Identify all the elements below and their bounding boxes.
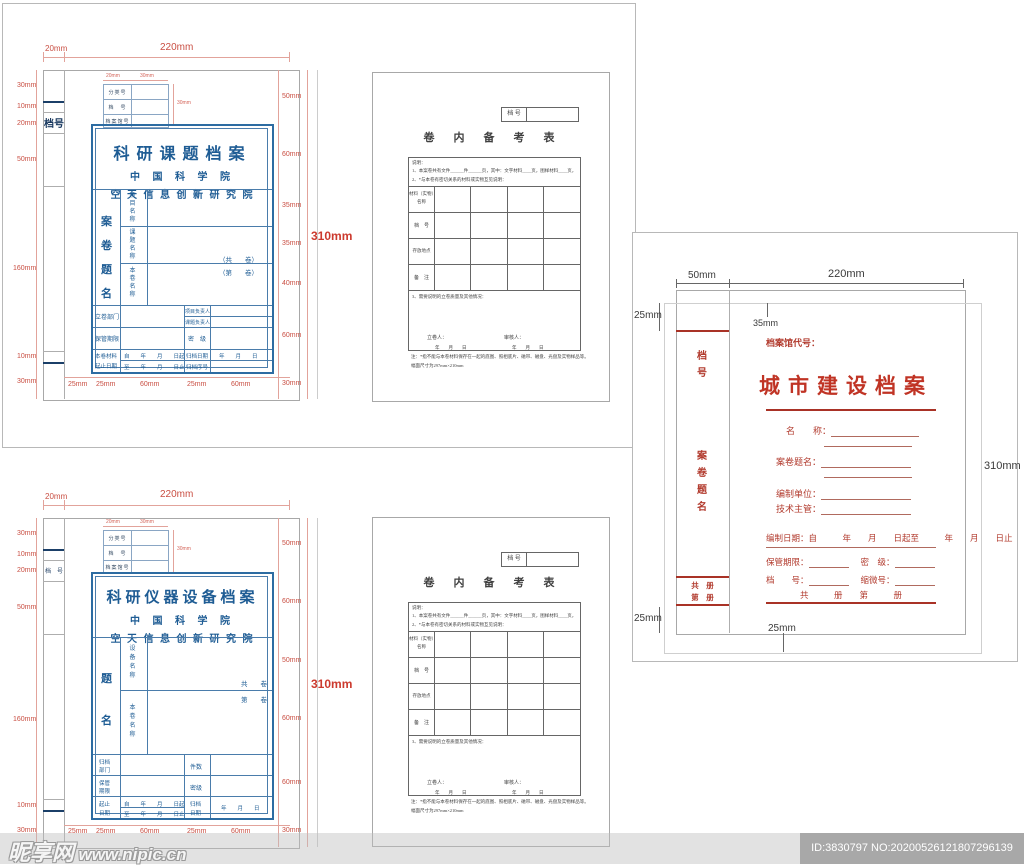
row-label: 材料（实物） [409, 636, 434, 642]
beikao-note: 说明： [412, 160, 426, 166]
grid-line [120, 690, 272, 691]
field-blank [831, 427, 919, 437]
beikao-note: 2、*与本卷有密切关系的材料或实物互见说明： [412, 177, 507, 183]
dim-label: 50mm [688, 271, 716, 281]
dim-line [43, 57, 290, 58]
dim-label: 60mm [282, 332, 301, 339]
folder2-org1: 中 国 科 学 院 [93, 612, 272, 627]
field-blank [821, 505, 911, 515]
cell-label: 密级 [190, 783, 202, 792]
dim-tick [963, 279, 964, 288]
mini-row-label: 档 号 [104, 546, 132, 560]
row-label: 备 注 [409, 274, 434, 281]
beikao-footnote: 注：*指不能与本卷材料保存在一起的底图、照相底片、磁带、磁盘、光盘及实物样品等。 [411, 799, 589, 805]
vol-total: 共 卷 [241, 678, 267, 688]
dim-tick [289, 500, 290, 510]
mini-row-label: 分类号 [104, 531, 132, 545]
dim-tick [289, 52, 290, 62]
folder2-cover-title: 科研仪器设备档案 [93, 586, 272, 607]
dim-label: 10mm [17, 802, 36, 809]
danghao-value [527, 553, 578, 566]
dim-label: 25mm [768, 624, 796, 634]
dim-label: 60mm [282, 779, 301, 786]
folder1-cover-title: 科研课题档案 [93, 140, 272, 164]
field-volume-count: 共 册 第 册 [766, 589, 936, 601]
spine-rule [43, 362, 64, 364]
folder1-spine-label: 档号 [44, 115, 64, 130]
date-label: 年 月 日 [512, 345, 544, 351]
form-line [543, 186, 544, 290]
folder1-side-col-label: 案卷题名 [100, 210, 113, 306]
dim-label: 25mm [634, 311, 662, 321]
spine-rule [43, 549, 64, 551]
dim-line [307, 70, 308, 399]
mini-row-label: 档 号 [104, 100, 132, 114]
spine-rule [43, 560, 64, 561]
field-date-range: 编制日期：自 年 月 日起至 年 月 日止 [766, 532, 936, 548]
mini-row-value [132, 546, 168, 560]
cell-label: 本卷材料 [95, 352, 117, 360]
spine-rule [676, 330, 729, 332]
field-unit: 编制单位： [776, 487, 911, 500]
danghao-label: 档 号 [502, 553, 527, 566]
folder2-side-col-label: 题名 [100, 658, 113, 742]
row-label: 本卷名称 [129, 267, 136, 299]
rightp-title-underline [766, 409, 936, 411]
rightp-spine-vol1: 共 册 [678, 580, 727, 591]
spine-rule [43, 581, 64, 582]
beikao-note: 1、本案卷共有文件______件______页，其中：文字材料____页，图样材… [412, 613, 576, 619]
dim-label: 10mm [17, 103, 36, 110]
dim-label: 160mm [13, 265, 36, 272]
cell-label: 自 年 月 日起 [124, 352, 185, 360]
folder1-mini-table: 分类号 档 号 档案馆号 [103, 84, 169, 128]
dim-line [173, 530, 174, 572]
dim-label: 20mm [106, 74, 120, 79]
field-label: 密 级： [861, 557, 895, 567]
sign-label: 审核人： [504, 779, 524, 786]
rightp-spine-vol2: 第 册 [678, 592, 727, 603]
dim-label: 25mm [68, 381, 87, 388]
rightp-spine-danghao: 档号 [695, 348, 709, 382]
rightp-title: 城市建设档案 [736, 370, 956, 400]
field-blank [895, 558, 935, 568]
row-label: 名称 [409, 644, 434, 650]
dim-label: 35mm [282, 240, 301, 247]
spine-rule [43, 101, 64, 103]
beikao-footnote: 幅面尺寸为297mm×210mm [411, 808, 464, 814]
folder2-mini-table: 分类号 档 号 档案馆号 [103, 530, 169, 574]
beikao-section3: 3、需要说明的立卷质量及其他情况： [412, 294, 486, 300]
dim-label: 25mm [187, 381, 206, 388]
grid-line [184, 305, 185, 372]
dim-label: 30mm [17, 378, 36, 385]
danghao-label: 档 号 [502, 108, 527, 121]
form-line [470, 631, 471, 735]
beikao-title: 卷 内 备 考 表 [373, 129, 609, 145]
dim-line [103, 526, 168, 527]
row-label: 本卷名称 [129, 704, 136, 740]
watermark-id-box: ID:3830797 NO:20200526121807296139 [800, 833, 1024, 864]
dim-tick [676, 279, 677, 288]
cell-label: 归档 [190, 800, 201, 808]
cell-label: 至 年 月 日止 [124, 363, 185, 371]
field-label: 案卷题名： [776, 457, 821, 467]
cell-label: 保管期限 [95, 334, 119, 343]
field-blank [821, 458, 911, 468]
dim-label: 20mm [45, 493, 67, 501]
beikao-section3: 3、需要说明的立卷质量及其他情况： [412, 739, 486, 745]
cell-label: 课题负责人 [185, 319, 210, 326]
form-line [507, 186, 508, 290]
folder2-spine-line [64, 518, 65, 847]
dim-label: 60mm [282, 151, 301, 158]
row-label: 档 号 [409, 222, 434, 229]
cell-label: 项目负责人 [185, 308, 210, 315]
cell-label: 归档日期 [186, 352, 208, 360]
dim-label: 30mm [140, 74, 154, 79]
beikao-page-2: 档 号 卷 内 备 考 表 说明： 1、本案卷共有文件______件______… [372, 517, 610, 847]
watermark-url: www.nipic.cn [78, 845, 186, 864]
row-label: 存放地点 [409, 693, 434, 699]
spine-rule [43, 112, 64, 113]
vol-number: （第 卷） [219, 267, 258, 277]
beikao-footnote: 幅面尺寸为297mm×210mm [411, 363, 464, 369]
dim-label: 60mm [282, 598, 301, 605]
beikao-note: 1、本案卷共有文件______件______页，其中：文字材料____页，图样材… [412, 168, 576, 174]
folder1-cover: 科研课题档案 中 国 科 学 院 空 天 信 息 创 新 研 究 院 案卷题名 … [91, 124, 274, 374]
dim-line [783, 633, 784, 652]
dim-line [307, 518, 308, 847]
dim-line [278, 70, 279, 399]
dim-label: 30mm [17, 82, 36, 89]
dim-tick [64, 52, 65, 62]
dim-line [173, 84, 174, 126]
beikao-note: 说明： [412, 605, 426, 611]
cell-label: 起止 [99, 800, 110, 808]
form-line [409, 290, 580, 291]
watermark-site: 昵享网 [8, 840, 74, 865]
form-line [434, 631, 435, 735]
field-tech: 技术主管： [776, 502, 911, 515]
grid-line [120, 360, 272, 361]
dim-label: 30mm [282, 380, 301, 387]
dim-label: 310mm [984, 461, 1021, 472]
form-line [434, 186, 435, 290]
dim-label: 30mm [177, 547, 191, 552]
dim-tick [64, 500, 65, 510]
spine-rule [676, 604, 729, 606]
grid-line [184, 316, 272, 317]
row-label: 名称 [409, 199, 434, 205]
row-label: 项目名称 [129, 192, 136, 224]
field-label: 保管期限： [766, 557, 809, 567]
row-label: 材料（实物） [409, 191, 434, 197]
cell-label: 至 年 月 日止 [124, 810, 185, 818]
field-keep-secret: 保管期限：密 级： [766, 556, 935, 568]
vol-number: 第 卷 [241, 694, 267, 704]
cell-label: 归档序号 [186, 363, 208, 371]
dim-label: 20mm [45, 45, 67, 53]
watermark-id-text: ID:3830797 NO:20200526121807296139 [811, 842, 1013, 854]
dim-line [278, 518, 279, 847]
spine-rule [43, 186, 64, 187]
folder1-spine-line [64, 70, 65, 399]
mini-row-label: 分类号 [104, 85, 132, 99]
spine-rule [43, 634, 64, 635]
folder2-spine-label: 档 号 [44, 566, 64, 575]
dim-label: 220mm [160, 43, 193, 53]
dim-label: 60mm [282, 715, 301, 722]
dim-label: 160mm [13, 716, 36, 723]
rightp-spine-title: 案卷题名 [695, 448, 709, 516]
sign-label: 立卷人： [427, 334, 447, 341]
dim-label: 20mm [106, 520, 120, 525]
beikao-table: 说明： 1、本案卷共有文件______件______页，其中：文字材料____页… [408, 157, 581, 351]
folder1-org1: 中 国 科 学 院 [93, 168, 272, 183]
grid-line [184, 754, 185, 818]
grid-line [210, 305, 211, 372]
dim-label: 25mm [96, 381, 115, 388]
field-blank [821, 490, 911, 500]
field-blank [809, 576, 849, 586]
mini-row-value [132, 531, 168, 545]
sign-label: 立卷人： [427, 779, 447, 786]
date-label: 年 月 日 [435, 345, 467, 351]
beikao-title: 卷 内 备 考 表 [373, 574, 609, 590]
dim-tick [43, 500, 44, 510]
row-label: 课题名称 [129, 229, 136, 261]
beikao-table: 说明： 1、本案卷共有文件______件______页，其中：文字材料____页… [408, 602, 581, 796]
field-blank [824, 437, 912, 447]
spine-rule [676, 576, 729, 578]
grid-line [210, 754, 211, 818]
field-name: 名 称： [786, 424, 919, 437]
dim-label: 50mm [282, 540, 301, 547]
dim-line [43, 505, 290, 506]
form-line [543, 631, 544, 735]
dim-label: 220mm [160, 490, 193, 500]
cell-label: 日期 [190, 809, 201, 817]
field-label: 名 称： [786, 426, 831, 436]
dim-label: 30mm [140, 520, 154, 525]
grid-line [120, 189, 121, 372]
row-label: 备 注 [409, 719, 434, 726]
dim-label: 10mm [17, 551, 36, 558]
danghao-box: 档 号 [501, 552, 579, 567]
cell-label: 件数 [190, 762, 202, 771]
rightp-spine-line [729, 290, 730, 633]
dim-line [767, 303, 768, 317]
cell-label: 归档 [99, 758, 110, 766]
vol-total: （共 卷） [219, 254, 258, 264]
rightp-archive-code: 档案馆代号： [766, 336, 820, 349]
rightp-bottom-rule [766, 602, 936, 604]
field-label: 缩微号： [861, 575, 895, 585]
dim-label-total: 310mm [311, 230, 352, 242]
dim-label: 50mm [17, 604, 36, 611]
dim-line [64, 377, 290, 378]
form-line [409, 735, 580, 736]
dim-label: 35mm [753, 319, 778, 328]
beikao-note: 2、*与本卷有密切关系的材料或实物互见说明： [412, 622, 507, 628]
cell-label: 年 月 日 [221, 804, 260, 812]
cell-label: 起止日期 [95, 362, 117, 370]
row-label: 存放地点 [409, 248, 434, 254]
form-line [470, 186, 471, 290]
mini-row-value [132, 85, 168, 99]
dim-label: 25mm [634, 614, 662, 624]
cell-label: 日期 [99, 809, 110, 817]
dim-label: 10mm [17, 353, 36, 360]
dim-line [103, 80, 168, 81]
grid-line [120, 637, 121, 818]
dim-label: 40mm [282, 280, 301, 287]
row-label: 设备名称 [129, 645, 136, 681]
cell-label: 密 级 [188, 334, 206, 343]
dim-label: 35mm [282, 202, 301, 209]
dim-label: 30mm [17, 530, 36, 537]
field-blank [809, 558, 849, 568]
field-blank [824, 468, 912, 478]
spine-rule [43, 351, 64, 352]
date-label: 年 月 日 [435, 790, 467, 796]
grid-line [147, 637, 148, 754]
spine-rule [43, 799, 64, 800]
dim-line [64, 825, 290, 826]
dim-tick [43, 52, 44, 62]
field-blank [895, 576, 935, 586]
cell-label: 年 月 日 [219, 352, 258, 360]
beikao-footnote: 注：*指不能与本卷材料保存在一起的底图、照相底片、磁带、磁盘、光盘及实物样品等。 [411, 354, 589, 360]
dim-label: 60mm [231, 381, 250, 388]
dim-label: 60mm [140, 381, 159, 388]
dim-label: 220mm [828, 269, 865, 280]
cell-label: 自 年 月 日起 [124, 800, 185, 808]
field-no-micro: 档 号：缩微号： [766, 574, 935, 586]
dim-label: 50mm [17, 156, 36, 163]
grid-line [120, 226, 272, 227]
watermark-text: 昵享网 www.nipic.cn [8, 835, 186, 867]
dim-label: 30mm [177, 101, 191, 106]
mini-row-value [132, 100, 168, 114]
dim-label-total: 310mm [311, 678, 352, 690]
grid-line [147, 189, 148, 305]
dim-tick [729, 279, 730, 288]
cell-label: 保管 [99, 779, 110, 787]
dim-label: 50mm [282, 657, 301, 664]
dim-label: 20mm [17, 567, 36, 574]
dim-label: 20mm [17, 120, 36, 127]
cell-label: 立卷部门 [95, 312, 119, 321]
spine-rule [43, 810, 64, 812]
field-volume-title: 案卷题名： [776, 455, 911, 468]
dim-line [676, 283, 964, 284]
sign-label: 审核人： [504, 334, 524, 341]
spine-rule [43, 133, 64, 134]
danghao-value [527, 108, 578, 121]
dim-label: 50mm [282, 93, 301, 100]
danghao-box: 档 号 [501, 107, 579, 122]
field-label: 档 号： [766, 575, 809, 585]
cell-label: 期限 [99, 787, 110, 795]
field-label: 编制单位： [776, 489, 821, 499]
beikao-page-1: 档 号 卷 内 备 考 表 说明： 1、本案卷共有文件______件______… [372, 72, 610, 402]
field-label: 技术主管： [776, 504, 821, 514]
row-label: 档 号 [409, 667, 434, 674]
date-label: 年 月 日 [512, 790, 544, 796]
cell-label: 部门 [99, 766, 110, 774]
folder2-cover: 科研仪器设备档案 中 国 科 学 院 空 天 信 息 创 新 研 究 院 题名 … [91, 572, 274, 820]
form-line [507, 631, 508, 735]
